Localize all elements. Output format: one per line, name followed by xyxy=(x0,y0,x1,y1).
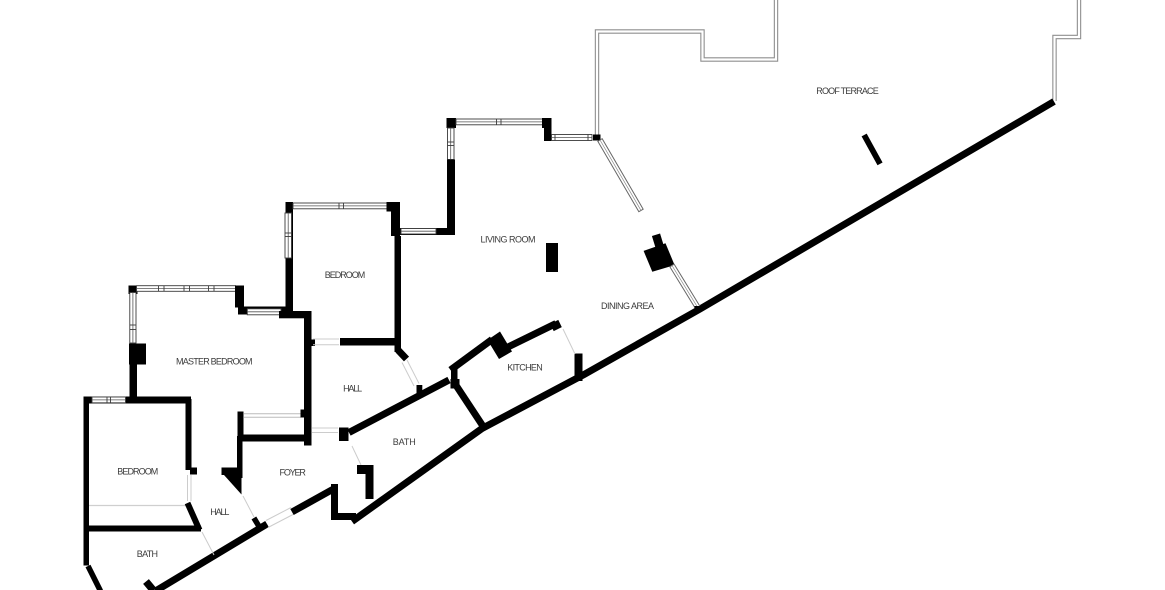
svg-text:DINING AREA: DINING AREA xyxy=(601,301,654,311)
svg-text:LIVING ROOM: LIVING ROOM xyxy=(481,235,536,245)
svg-text:ROOF TERRACE: ROOF TERRACE xyxy=(816,86,879,96)
svg-text:BEDROOM: BEDROOM xyxy=(325,270,366,280)
svg-text:BATH: BATH xyxy=(137,549,158,559)
svg-text:FOYER: FOYER xyxy=(280,468,307,478)
svg-text:HALL: HALL xyxy=(210,507,229,517)
svg-text:HALL: HALL xyxy=(343,384,362,394)
svg-text:MASTER BEDROOM: MASTER BEDROOM xyxy=(176,357,252,367)
svg-text:BATH: BATH xyxy=(393,437,416,447)
svg-text:BEDROOM: BEDROOM xyxy=(117,467,158,477)
svg-text:KITCHEN: KITCHEN xyxy=(507,363,543,373)
